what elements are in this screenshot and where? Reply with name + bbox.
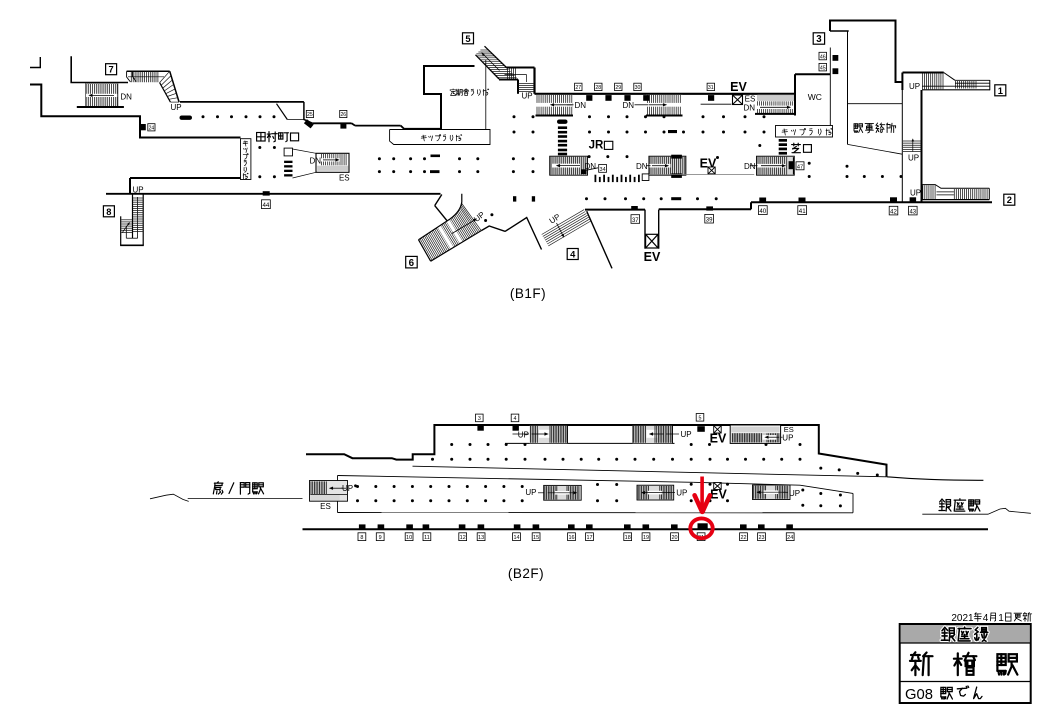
svg-text:4: 4 <box>983 613 989 624</box>
svg-text:2021: 2021 <box>951 613 974 624</box>
svg-text:EV: EV <box>710 431 727 445</box>
svg-text:ES: ES <box>339 173 350 182</box>
svg-text:DN: DN <box>120 92 132 101</box>
svg-text:UP: UP <box>676 488 687 497</box>
svg-text:6: 6 <box>409 258 415 269</box>
svg-text:26: 26 <box>340 112 346 118</box>
svg-text:46: 46 <box>820 54 826 60</box>
svg-text:42: 42 <box>890 209 897 215</box>
svg-text:EV: EV <box>710 487 727 501</box>
svg-text:4: 4 <box>570 250 576 260</box>
svg-text:UP: UP <box>782 434 793 443</box>
svg-text:47: 47 <box>797 164 803 170</box>
svg-text:UP: UP <box>789 489 800 498</box>
svg-text:G08: G08 <box>905 687 933 703</box>
svg-text:UP: UP <box>170 103 181 112</box>
svg-text:(B1F): (B1F) <box>510 286 546 301</box>
svg-text:DN: DN <box>743 103 755 112</box>
svg-text:5: 5 <box>465 34 470 44</box>
svg-text:17: 17 <box>586 535 592 541</box>
svg-text:UP: UP <box>518 430 529 439</box>
svg-text:12: 12 <box>460 535 466 541</box>
svg-text:UP: UP <box>909 82 920 91</box>
svg-text:16: 16 <box>568 535 574 541</box>
svg-text:18: 18 <box>625 535 631 541</box>
svg-text:DN: DN <box>585 162 597 171</box>
svg-text:JR: JR <box>589 140 604 152</box>
svg-text:2: 2 <box>1007 195 1012 205</box>
svg-text:UP: UP <box>910 189 921 198</box>
svg-text:7: 7 <box>108 65 113 75</box>
svg-text:5: 5 <box>699 416 702 422</box>
svg-text:UP: UP <box>132 186 143 195</box>
svg-text:44: 44 <box>262 202 269 209</box>
svg-text:24: 24 <box>149 125 155 131</box>
svg-text:8: 8 <box>360 535 363 541</box>
svg-text:39: 39 <box>706 218 713 224</box>
svg-text:ES: ES <box>784 425 794 434</box>
svg-text:22: 22 <box>740 535 746 541</box>
svg-text:41: 41 <box>799 208 806 215</box>
svg-text:19: 19 <box>643 535 649 541</box>
svg-text:3: 3 <box>816 34 822 45</box>
svg-text:WC: WC <box>808 92 822 102</box>
svg-text:EV: EV <box>730 80 747 94</box>
svg-text:DN: DN <box>309 156 321 165</box>
svg-text:24: 24 <box>787 535 793 541</box>
svg-text:15: 15 <box>533 535 539 541</box>
svg-text:14: 14 <box>513 535 519 541</box>
svg-text:DN: DN <box>744 162 756 171</box>
svg-text:1: 1 <box>998 613 1004 624</box>
svg-text:UP: UP <box>681 430 692 439</box>
svg-text:4: 4 <box>514 416 517 422</box>
svg-text:(B2F): (B2F) <box>508 566 544 581</box>
svg-text:UP: UP <box>525 488 536 497</box>
svg-text:UP: UP <box>521 92 532 101</box>
svg-text:28: 28 <box>595 85 601 91</box>
svg-text:DN: DN <box>622 101 634 110</box>
svg-text:DN: DN <box>636 162 648 171</box>
svg-text:UP: UP <box>908 154 919 163</box>
svg-text:ES: ES <box>320 502 331 511</box>
svg-text:29: 29 <box>615 85 621 91</box>
svg-text:23: 23 <box>758 535 764 541</box>
svg-text:43: 43 <box>909 209 916 215</box>
svg-text:31: 31 <box>708 85 714 91</box>
svg-text:8: 8 <box>106 207 111 217</box>
svg-text:1: 1 <box>998 86 1003 96</box>
svg-text:3: 3 <box>478 416 481 422</box>
svg-text:11: 11 <box>424 535 430 541</box>
svg-text:9: 9 <box>379 535 382 541</box>
svg-text:25: 25 <box>307 112 313 118</box>
svg-text:30: 30 <box>635 85 641 91</box>
svg-text:DN: DN <box>575 101 587 110</box>
svg-text:20: 20 <box>671 535 677 541</box>
svg-text:34: 34 <box>600 167 606 173</box>
svg-text:EV: EV <box>644 250 661 264</box>
svg-text:45: 45 <box>820 65 826 71</box>
svg-text:13: 13 <box>478 535 484 541</box>
svg-text:UP: UP <box>342 484 353 493</box>
svg-text:10: 10 <box>406 535 412 541</box>
svg-text:37: 37 <box>632 218 639 224</box>
svg-text:27: 27 <box>575 85 581 91</box>
svg-text:ES: ES <box>745 95 756 104</box>
svg-text:40: 40 <box>759 208 766 215</box>
